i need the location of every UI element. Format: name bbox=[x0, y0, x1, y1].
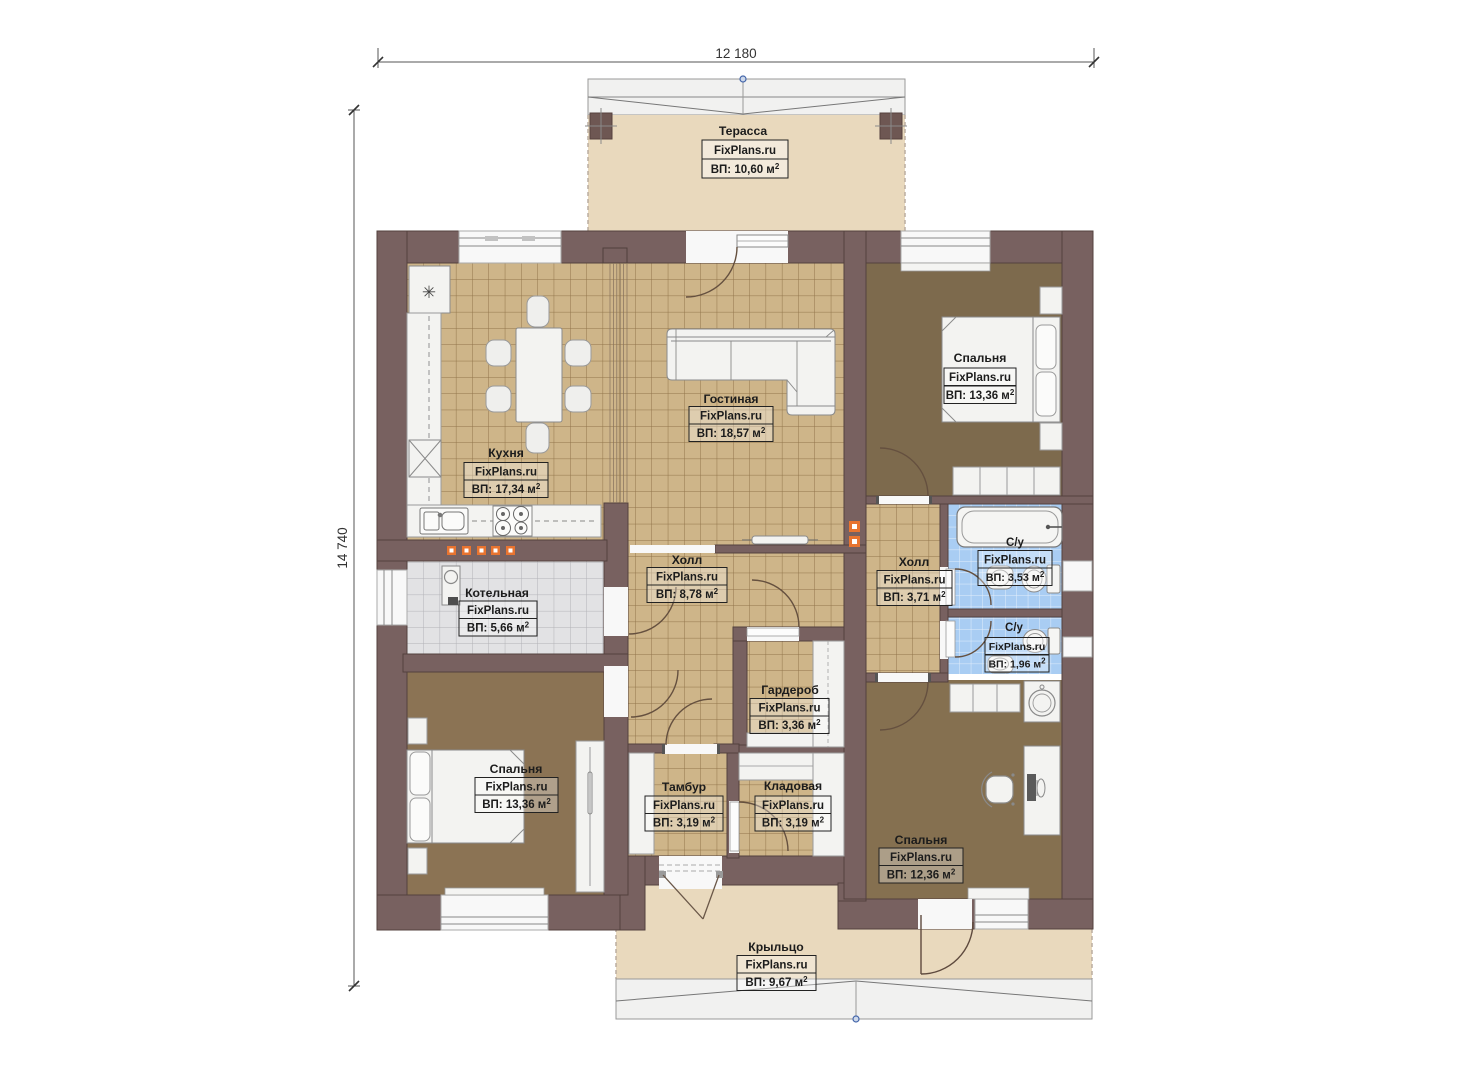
svg-text:ВП: 9,67 м2: ВП: 9,67 м2 bbox=[745, 975, 808, 989]
svg-text:ВП: 3,19 м2: ВП: 3,19 м2 bbox=[762, 816, 825, 830]
svg-text:FixPlans.ru: FixPlans.ru bbox=[653, 800, 715, 812]
svg-text:ВП: 3,19 м2: ВП: 3,19 м2 bbox=[653, 816, 716, 830]
svg-text:Гостиная: Гостиная bbox=[703, 392, 758, 406]
svg-text:FixPlans.ru: FixPlans.ru bbox=[949, 372, 1011, 384]
svg-text:FixPlans.ru: FixPlans.ru bbox=[656, 572, 718, 584]
svg-text:Терасса: Терасса bbox=[719, 124, 768, 138]
svg-text:ВП: 3,36 м2: ВП: 3,36 м2 bbox=[758, 718, 821, 732]
svg-text:FixPlans.ru: FixPlans.ru bbox=[884, 575, 946, 587]
svg-text:FixPlans.ru: FixPlans.ru bbox=[759, 703, 821, 715]
svg-text:С/у: С/у bbox=[1005, 622, 1024, 634]
svg-text:ВП: 5,66 м2: ВП: 5,66 м2 bbox=[467, 621, 530, 635]
svg-text:Спальня: Спальня bbox=[954, 351, 1007, 365]
svg-text:ВП: 1,96 м2: ВП: 1,96 м2 bbox=[988, 657, 1046, 671]
svg-text:ВП: 12,36 м2: ВП: 12,36 м2 bbox=[887, 868, 956, 882]
svg-text:FixPlans.ru: FixPlans.ru bbox=[762, 800, 824, 812]
svg-text:Тамбур: Тамбур bbox=[662, 780, 706, 794]
svg-text:ВП: 8,78 м2: ВП: 8,78 м2 bbox=[656, 587, 719, 601]
svg-text:ВП: 13,36 м2: ВП: 13,36 м2 bbox=[482, 797, 551, 811]
svg-text:FixPlans.ru: FixPlans.ru bbox=[746, 960, 808, 972]
svg-text:Гардероб: Гардероб bbox=[761, 683, 819, 697]
svg-text:FixPlans.ru: FixPlans.ru bbox=[475, 467, 537, 479]
svg-text:12 180: 12 180 bbox=[715, 46, 756, 61]
svg-text:Кухня: Кухня bbox=[488, 446, 524, 460]
svg-text:Холл: Холл bbox=[672, 553, 703, 567]
svg-text:Крыльцо: Крыльцо bbox=[748, 940, 803, 954]
svg-text:ВП: 13,36 м2: ВП: 13,36 м2 bbox=[946, 388, 1015, 402]
svg-text:ВП: 17,34 м2: ВП: 17,34 м2 bbox=[472, 482, 541, 496]
svg-text:Спальня: Спальня bbox=[895, 833, 948, 847]
svg-text:Кладовая: Кладовая bbox=[764, 779, 822, 793]
svg-text:Котельная: Котельная bbox=[465, 586, 529, 600]
svg-text:ВП: 3,53 м2: ВП: 3,53 м2 bbox=[986, 570, 1045, 584]
svg-text:FixPlans.ru: FixPlans.ru bbox=[486, 782, 548, 794]
svg-text:FixPlans.ru: FixPlans.ru bbox=[700, 411, 762, 423]
svg-text:FixPlans.ru: FixPlans.ru bbox=[989, 641, 1046, 653]
svg-text:FixPlans.ru: FixPlans.ru bbox=[467, 605, 529, 617]
svg-text:FixPlans.ru: FixPlans.ru bbox=[714, 145, 776, 157]
svg-text:ВП: 10,60 м2: ВП: 10,60 м2 bbox=[711, 162, 780, 176]
svg-text:FixPlans.ru: FixPlans.ru bbox=[890, 852, 952, 864]
svg-text:FixPlans.ru: FixPlans.ru bbox=[984, 555, 1046, 567]
svg-text:Спальня: Спальня bbox=[490, 762, 543, 776]
svg-text:С/у: С/у bbox=[1006, 537, 1025, 549]
svg-text:14 740: 14 740 bbox=[335, 527, 350, 568]
svg-text:Холл: Холл bbox=[899, 555, 930, 569]
svg-text:✳: ✳ bbox=[422, 283, 436, 302]
svg-text:ВП: 18,57 м2: ВП: 18,57 м2 bbox=[697, 426, 766, 440]
svg-text:ВП: 3,71 м2: ВП: 3,71 м2 bbox=[883, 590, 946, 604]
